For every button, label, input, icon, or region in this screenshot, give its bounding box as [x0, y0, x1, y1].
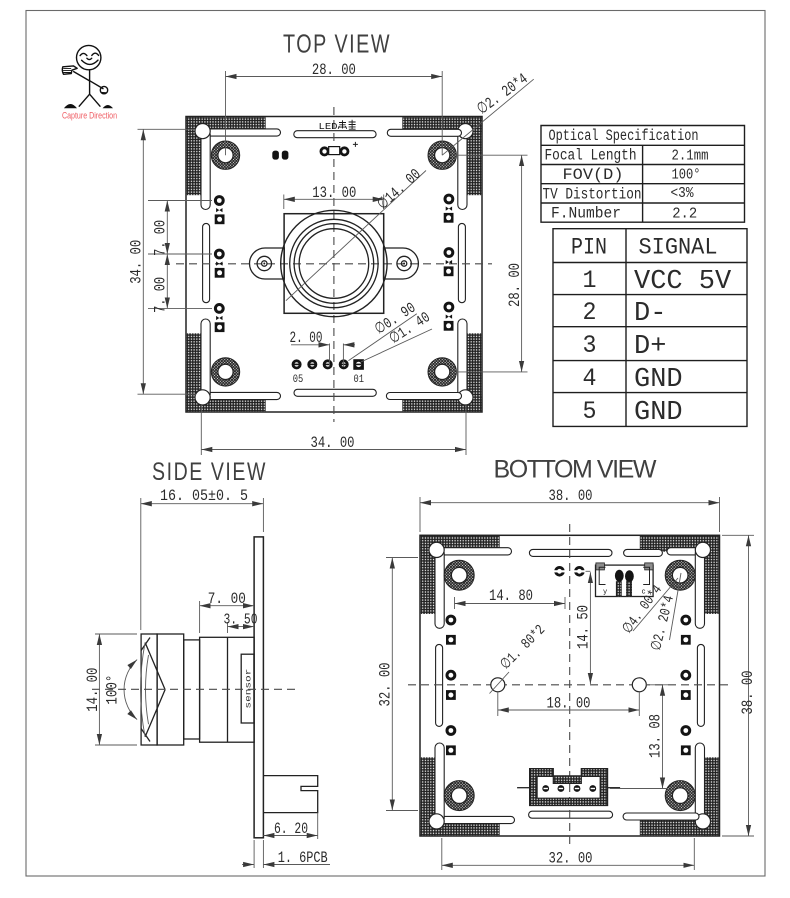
- svg-text:Focal Length: Focal Length: [545, 147, 637, 165]
- svg-text:01: 01: [354, 374, 365, 386]
- svg-text:14. 00: 14. 00: [84, 668, 102, 712]
- svg-text:5: 5: [583, 397, 597, 426]
- svg-text:05: 05: [293, 374, 304, 386]
- svg-text:38. 00: 38. 00: [739, 671, 757, 715]
- svg-text:100°: 100°: [104, 675, 122, 705]
- svg-text:1: 1: [583, 266, 597, 295]
- svg-text:TV Distortion: TV Distortion: [543, 185, 642, 203]
- svg-text:28. 00: 28. 00: [506, 263, 524, 307]
- svg-text:18. 00: 18. 00: [547, 694, 591, 712]
- svg-text:3: 3: [583, 331, 597, 360]
- svg-text:Capture Direction: Capture Direction: [62, 111, 117, 122]
- svg-text:7. 00: 7. 00: [152, 220, 170, 256]
- svg-text:2.2: 2.2: [672, 205, 697, 222]
- svg-text:100°: 100°: [672, 166, 701, 183]
- svg-text:34. 00: 34. 00: [311, 434, 355, 452]
- svg-text:2. 00: 2. 00: [290, 329, 323, 347]
- svg-text:SIDE VIEW: SIDE VIEW: [152, 458, 267, 486]
- svg-text:38. 00: 38. 00: [549, 487, 593, 505]
- svg-text:28. 00: 28. 00: [312, 61, 356, 79]
- svg-text:32. 00: 32. 00: [549, 850, 593, 868]
- svg-text:GND: GND: [634, 398, 683, 428]
- svg-text:14. 50: 14. 50: [575, 605, 593, 649]
- svg-text:4: 4: [583, 364, 597, 393]
- svg-text:BOTTOM VIEW: BOTTOM VIEW: [494, 456, 659, 484]
- svg-text:2.1mm: 2.1mm: [672, 149, 709, 165]
- svg-text:Optical Specification: Optical Specification: [549, 127, 699, 145]
- svg-text:sensor: sensor: [245, 668, 254, 708]
- svg-text:32. 00: 32. 00: [377, 663, 395, 707]
- svg-text:<3%: <3%: [671, 186, 694, 202]
- svg-text:13. 08: 13. 08: [647, 714, 665, 758]
- svg-text:PIN: PIN: [571, 234, 607, 260]
- svg-text:FOV(D): FOV(D): [563, 166, 624, 184]
- svg-text:7. 00: 7. 00: [208, 590, 246, 608]
- svg-text:y: y: [603, 589, 607, 597]
- svg-text:F.Number: F.Number: [551, 204, 621, 222]
- svg-text:2: 2: [583, 298, 597, 327]
- svg-text:3. 50: 3. 50: [224, 612, 258, 629]
- svg-text:VCC 5V: VCC 5V: [634, 267, 732, 297]
- svg-text:LED: LED: [319, 121, 338, 132]
- svg-text:34. 00: 34. 00: [128, 240, 146, 284]
- svg-text:7. 00: 7. 00: [152, 277, 170, 313]
- svg-text:1. 6PCB: 1. 6PCB: [278, 849, 328, 867]
- svg-text:D-: D-: [634, 299, 666, 329]
- svg-text:D+: D+: [634, 332, 666, 362]
- svg-text:GND: GND: [634, 365, 683, 395]
- svg-text:16. 05±0. 5: 16. 05±0. 5: [160, 487, 248, 505]
- svg-text:13. 00: 13. 00: [312, 184, 356, 202]
- svg-text:6. 20: 6. 20: [274, 820, 308, 838]
- svg-text:TOP VIEW: TOP VIEW: [283, 29, 391, 59]
- svg-text:SIGNAL: SIGNAL: [639, 234, 718, 260]
- svg-text:14. 80: 14. 80: [489, 587, 533, 605]
